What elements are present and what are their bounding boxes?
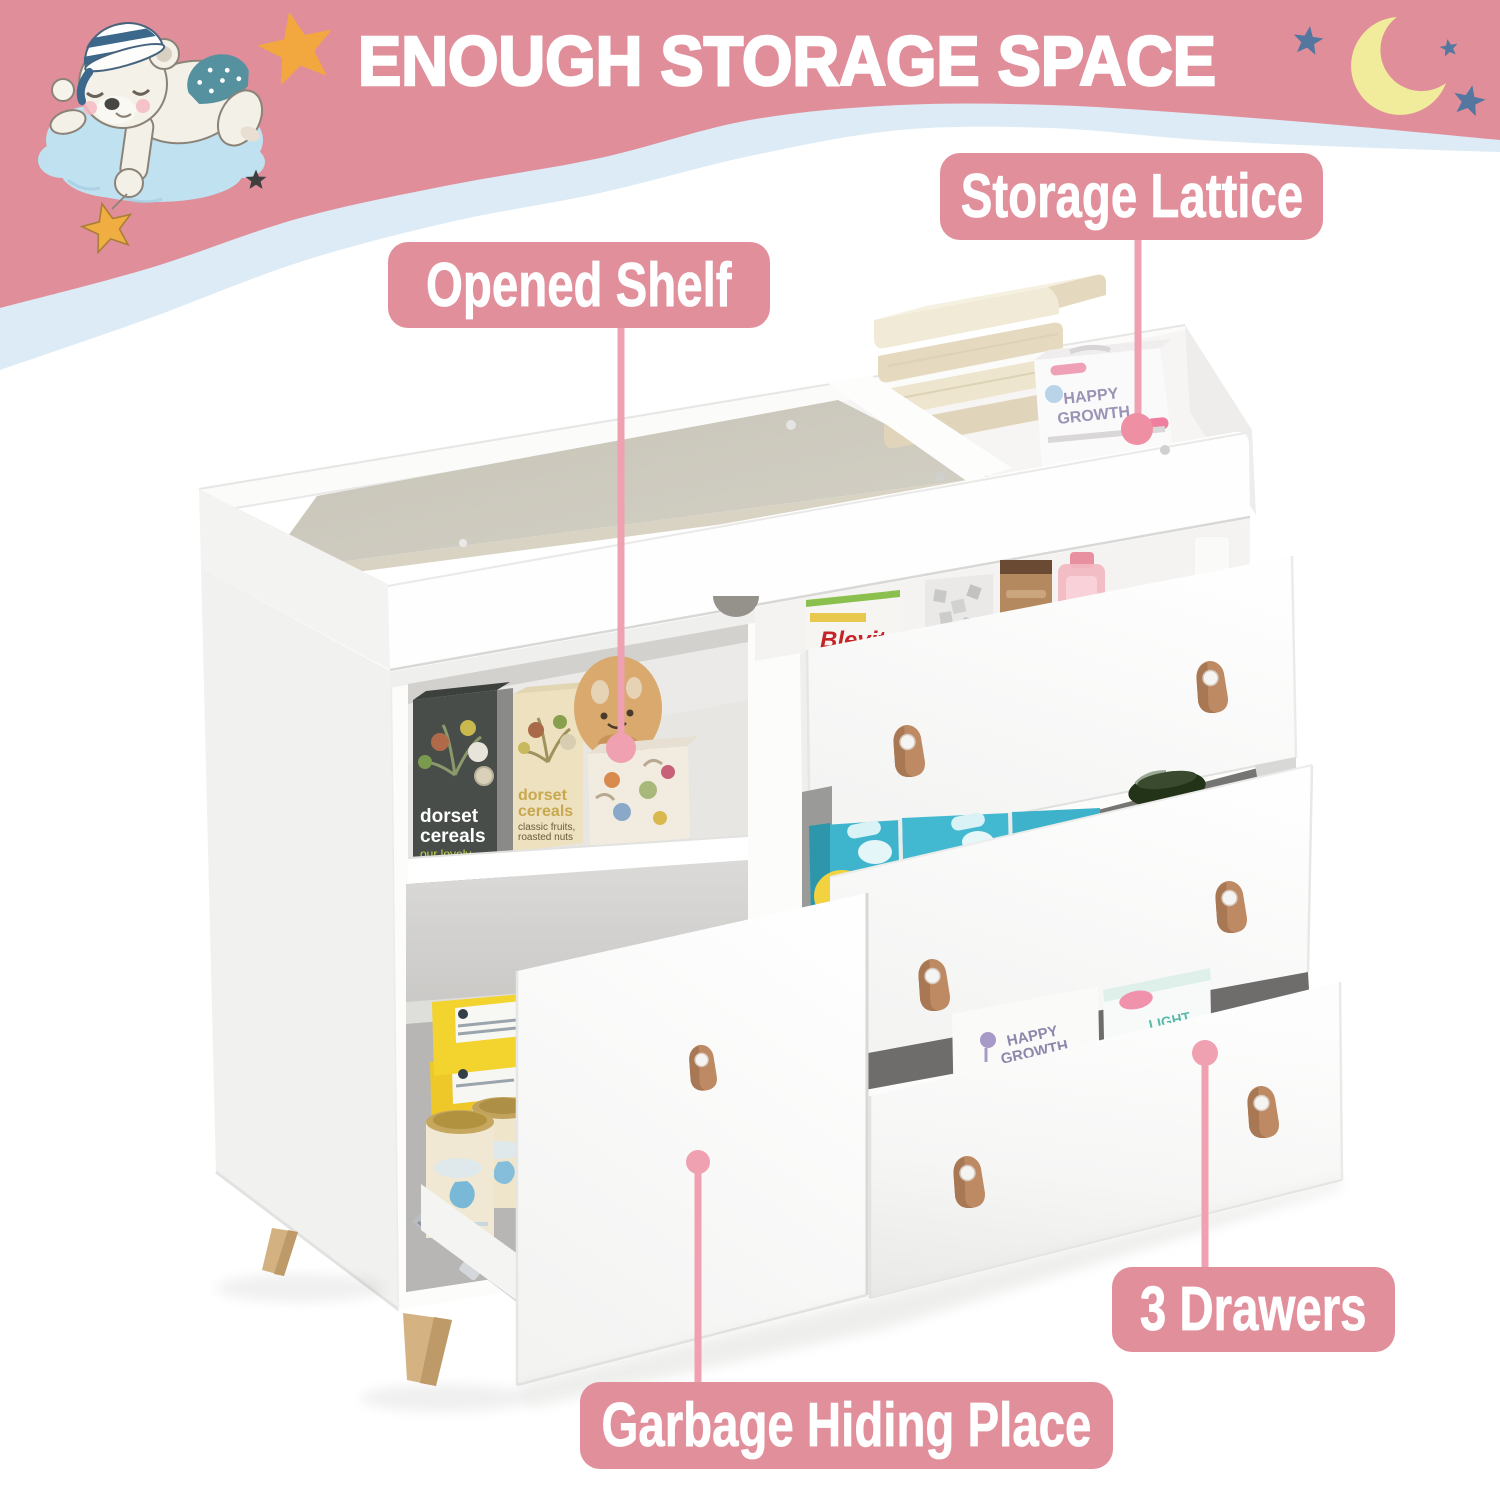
- svg-text:dorset: dorset: [420, 806, 479, 827]
- svg-text:dorset: dorset: [518, 787, 568, 804]
- svg-text:cereals: cereals: [518, 803, 573, 820]
- svg-text:cereals: cereals: [420, 826, 486, 847]
- svg-text:roasted nuts: roasted nuts: [518, 832, 573, 843]
